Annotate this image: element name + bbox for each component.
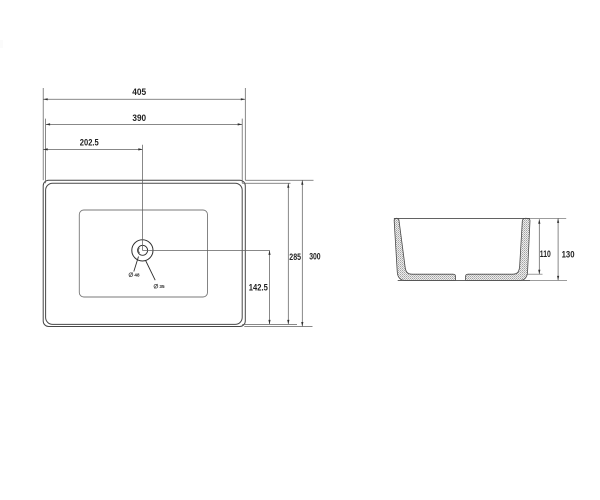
svg-text:142.5: 142.5 [249,283,269,294]
svg-text:285: 285 [289,252,301,263]
svg-text:48: 48 [134,273,140,278]
svg-text:202.5: 202.5 [80,137,99,148]
svg-text:405: 405 [132,87,146,98]
svg-text:390: 390 [132,113,146,124]
svg-text:35: 35 [159,284,165,289]
svg-text:130: 130 [562,250,575,261]
svg-text:300: 300 [309,251,320,262]
svg-text:110: 110 [540,249,551,260]
